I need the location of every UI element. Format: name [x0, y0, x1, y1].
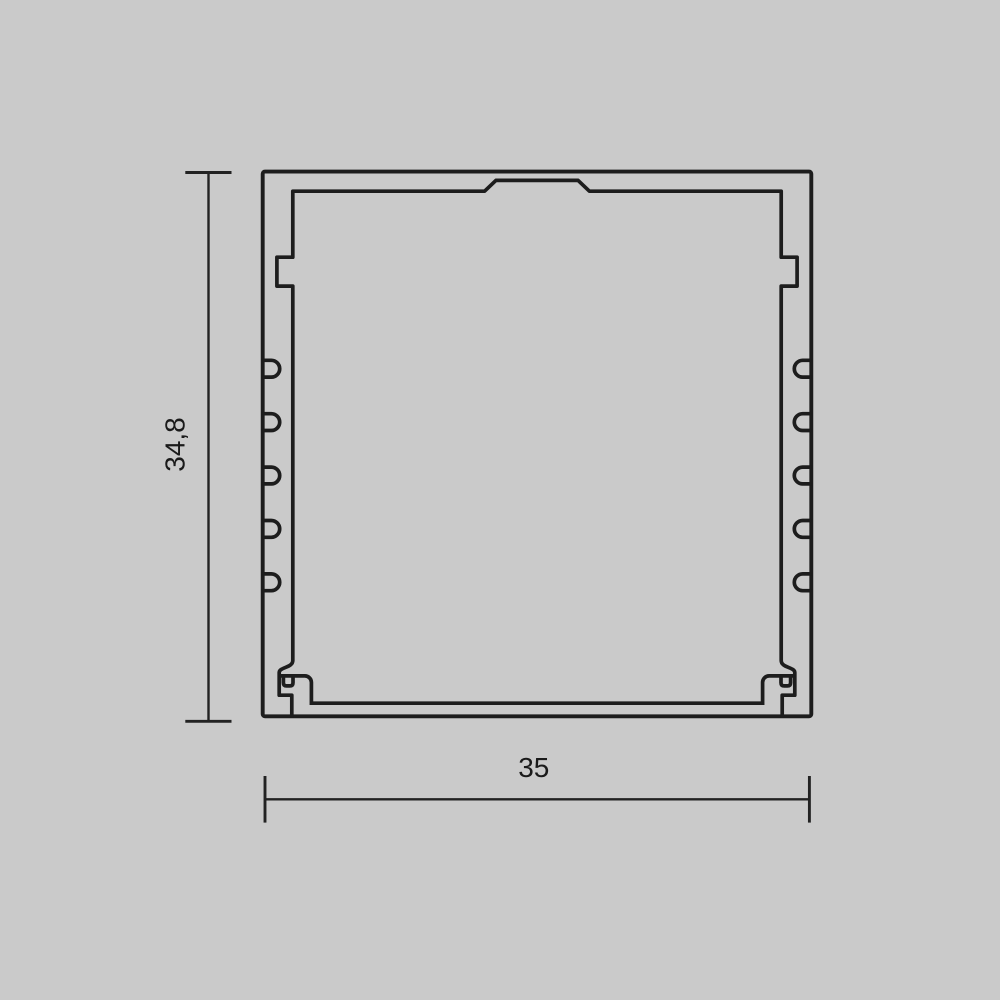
svg-text:35: 35: [518, 752, 549, 783]
svg-text:34,8: 34,8: [160, 417, 191, 472]
